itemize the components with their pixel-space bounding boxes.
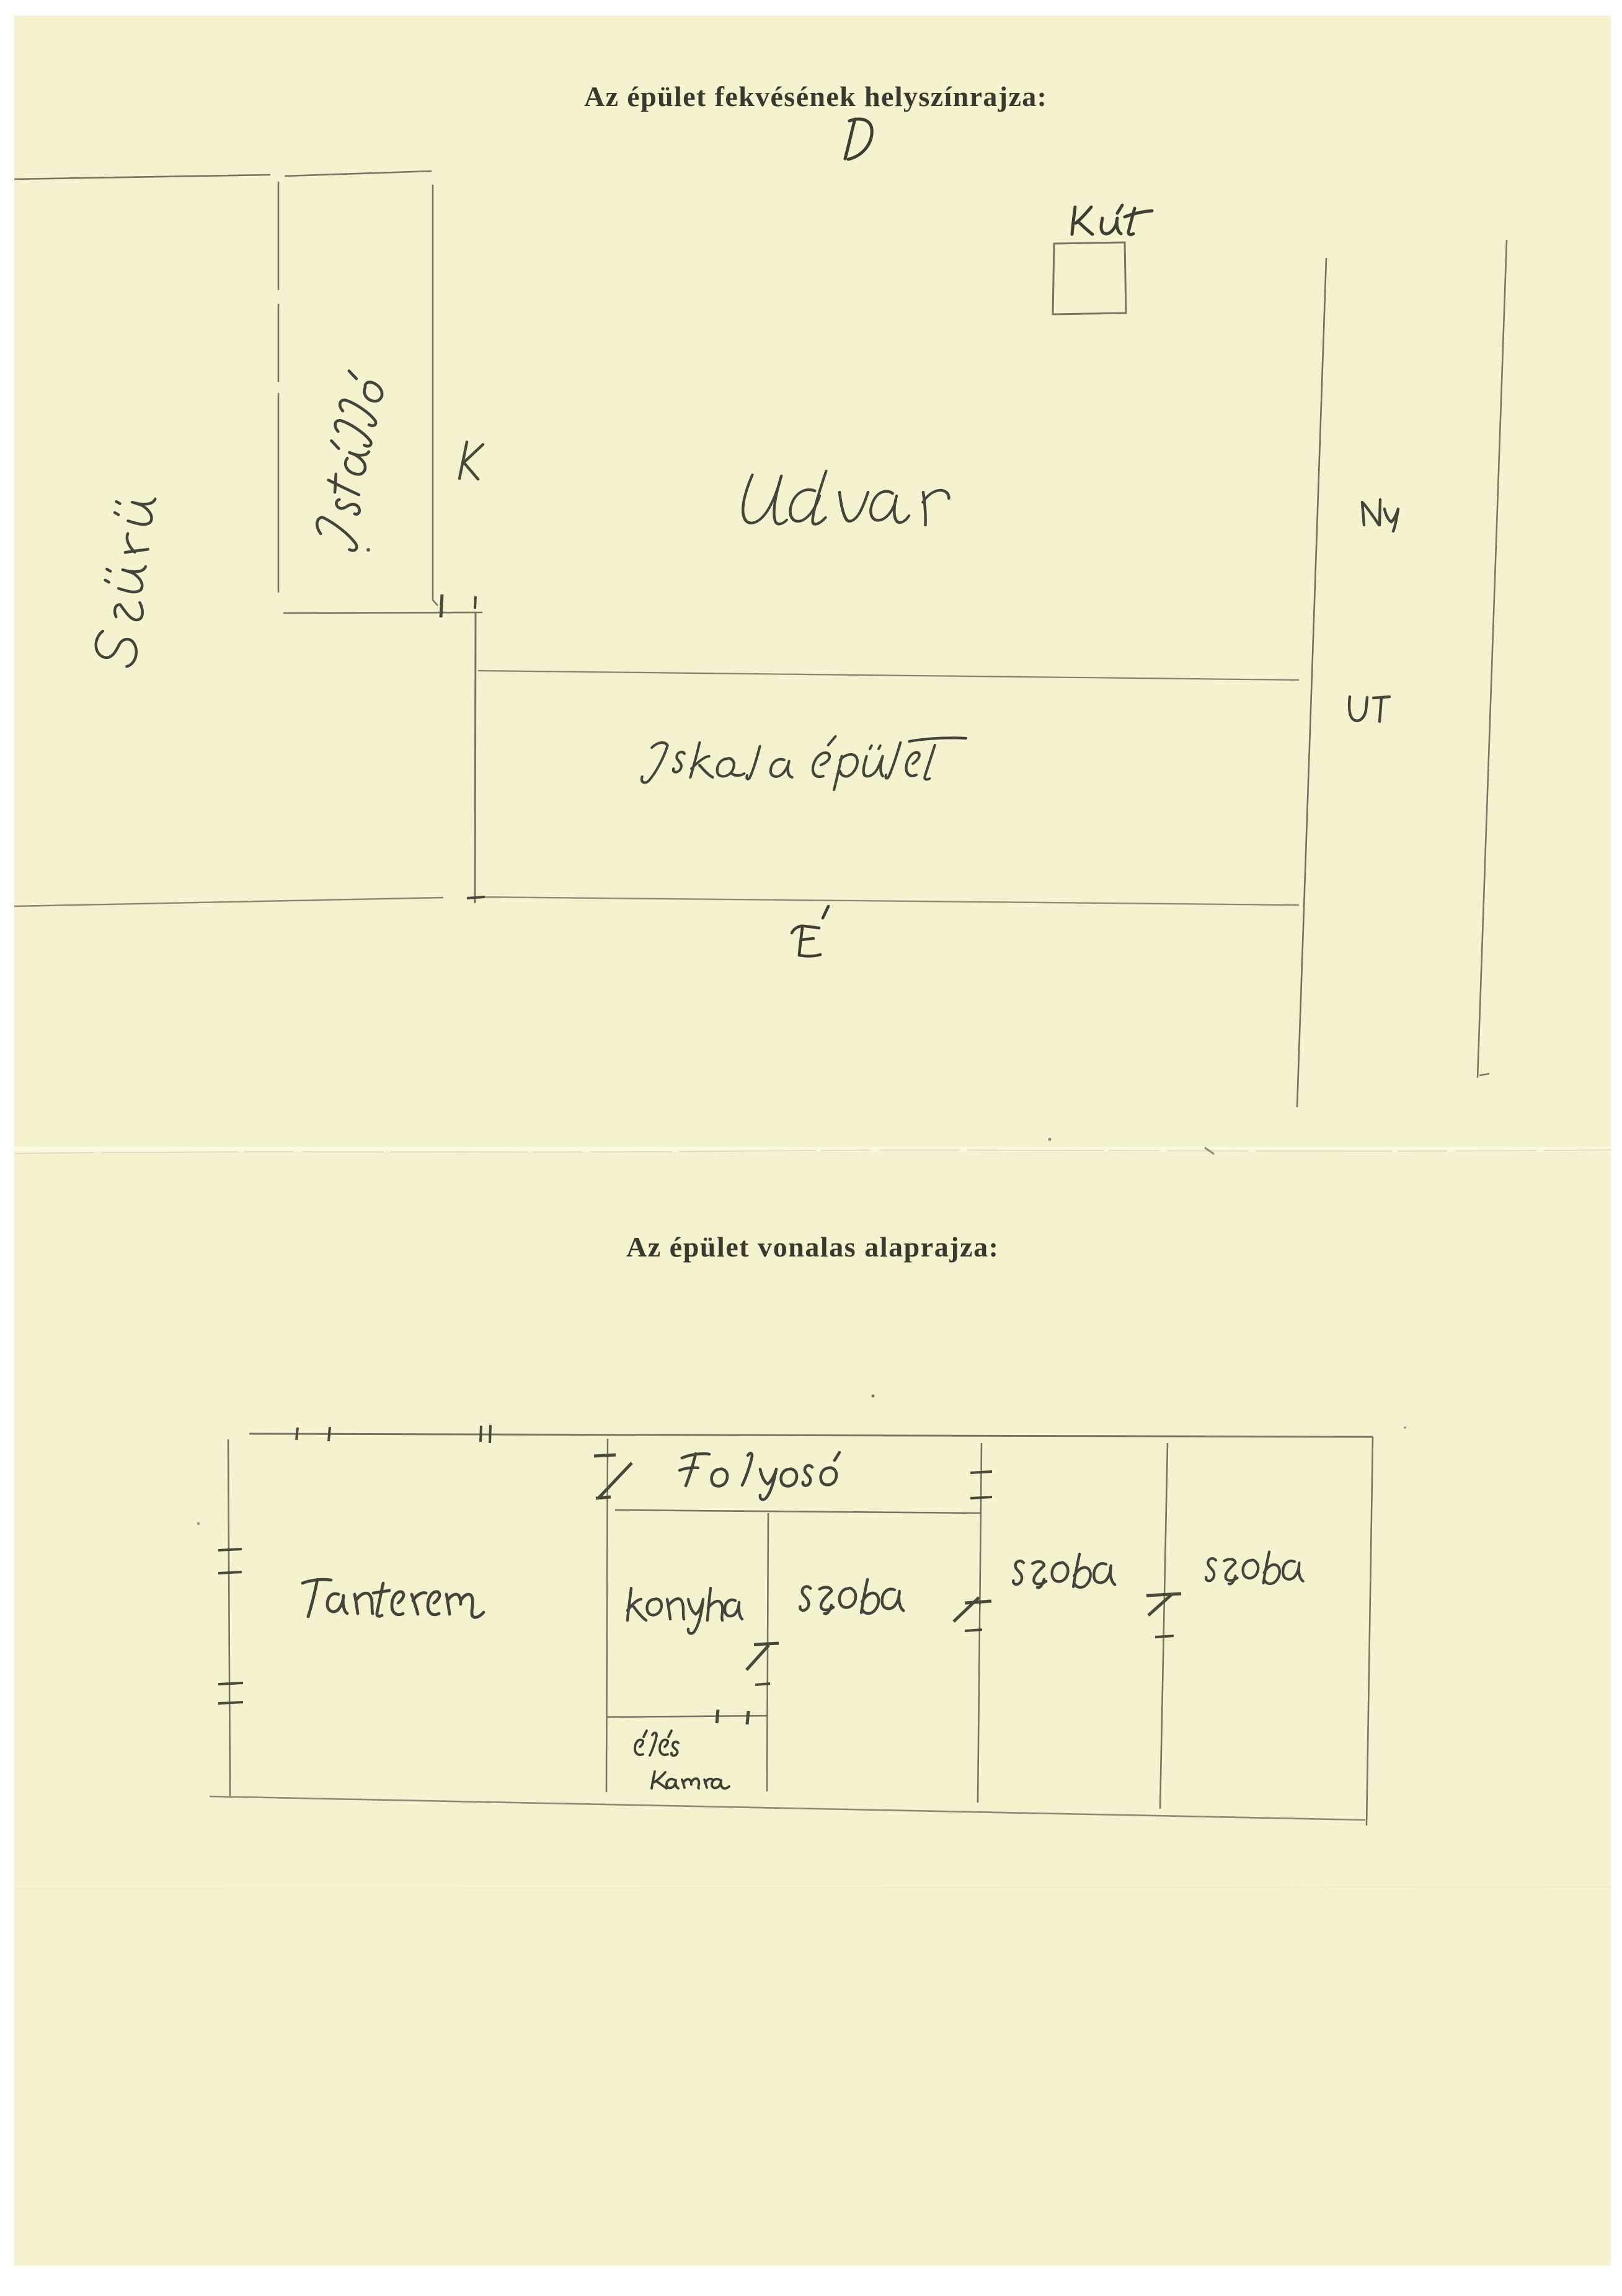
svg-text:Az épület vonalas alaprajza:: Az épület vonalas alaprajza: [626, 1231, 998, 1263]
svg-text:Az épület fekvésének helyszínr: Az épület fekvésének helyszínrajza: [584, 81, 1047, 112]
